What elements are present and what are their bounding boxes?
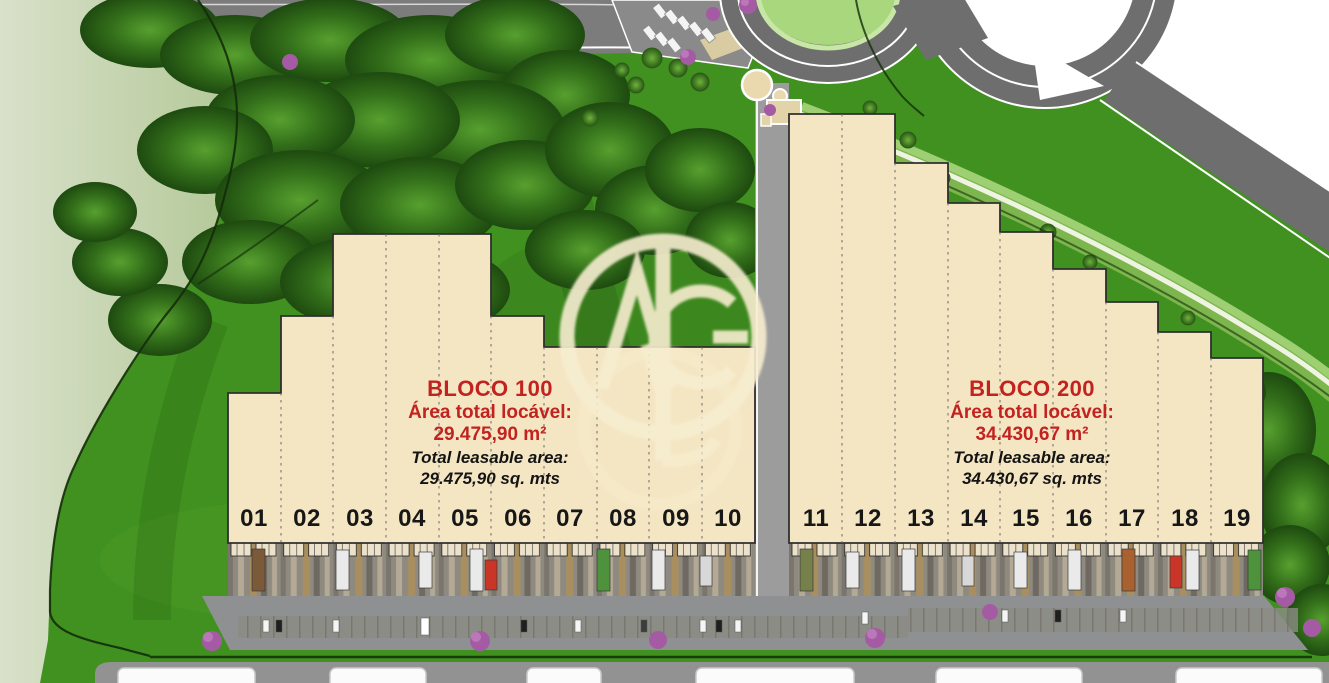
water-tank bbox=[742, 70, 772, 100]
bottom-road bbox=[95, 662, 1329, 683]
site-plan-graphics bbox=[0, 0, 1329, 683]
loading-docks bbox=[228, 543, 1263, 598]
site-plan: BLOCO 100 Área total locável: 29.475,90 … bbox=[0, 0, 1329, 683]
